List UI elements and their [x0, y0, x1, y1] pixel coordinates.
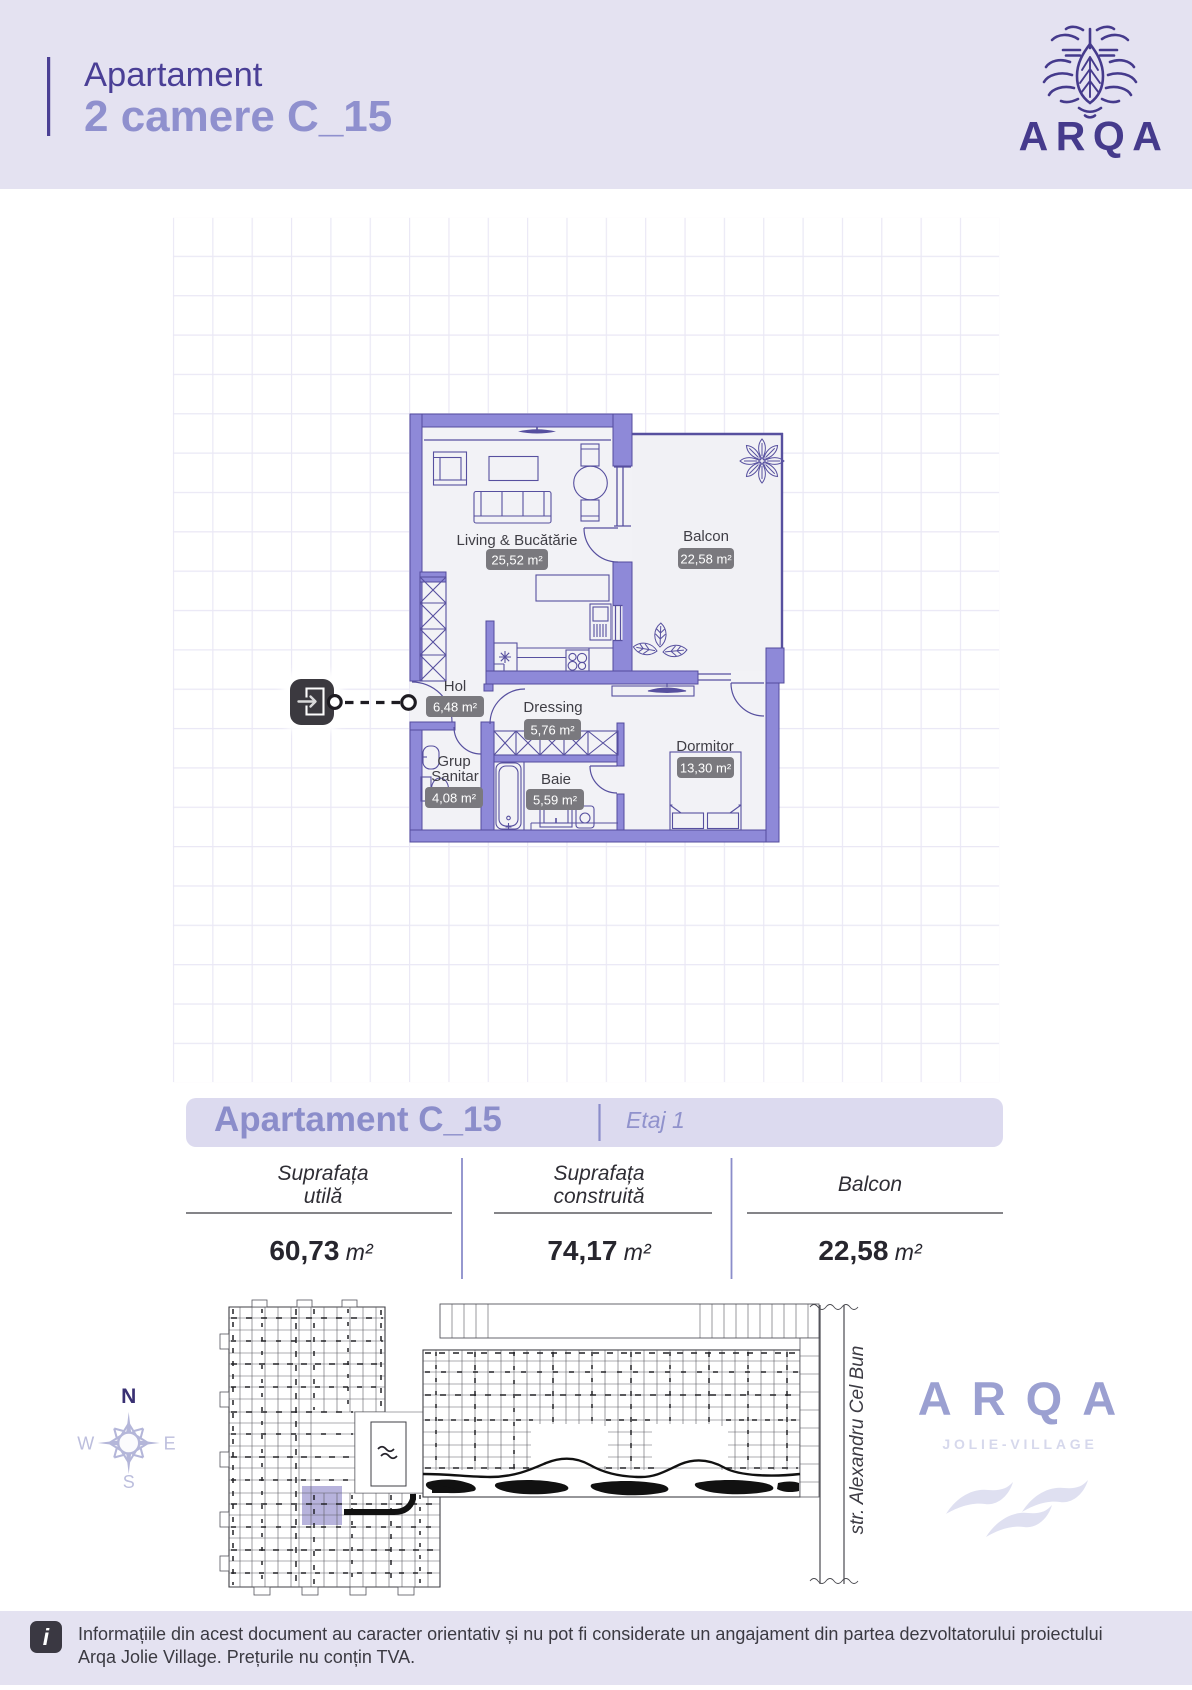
svg-text:Balcon: Balcon	[683, 528, 729, 545]
svg-text:6,48 m²: 6,48 m²	[433, 700, 478, 715]
svg-text:JOLIE-VILLAGE: JOLIE-VILLAGE	[942, 1436, 1097, 1452]
svg-text:74,17 m²: 74,17 m²	[547, 1235, 652, 1266]
svg-text:i: i	[43, 1624, 50, 1650]
svg-text:Apartament: Apartament	[84, 56, 263, 94]
svg-text:W: W	[77, 1434, 94, 1454]
svg-text:Informațiile din acest documen: Informațiile din acest document au carac…	[78, 1624, 1103, 1644]
svg-text:Dressing: Dressing	[523, 699, 582, 716]
svg-text:Balcon: Balcon	[838, 1173, 902, 1196]
svg-text:22,58 m²: 22,58 m²	[680, 552, 732, 567]
svg-text:str. Alexandru Cel Bun: str. Alexandru Cel Bun	[847, 1346, 868, 1535]
svg-text:Baie: Baie	[541, 771, 571, 788]
svg-text:S: S	[123, 1472, 135, 1492]
svg-text:Suprafața: Suprafața	[553, 1162, 644, 1185]
svg-text:Dormitor: Dormitor	[676, 738, 734, 755]
svg-text:13,30 m²: 13,30 m²	[680, 761, 732, 776]
svg-text:utilă: utilă	[304, 1185, 343, 1208]
svg-text:5,76 m²: 5,76 m²	[530, 723, 575, 738]
svg-text:ARQA: ARQA	[918, 1372, 1136, 1425]
svg-text:2 camere C_15: 2 camere C_15	[84, 92, 392, 141]
svg-text:4,08 m²: 4,08 m²	[432, 791, 477, 806]
svg-text:construită: construită	[553, 1185, 644, 1208]
svg-text:60,73 m²: 60,73 m²	[269, 1235, 374, 1266]
svg-text:5,59 m²: 5,59 m²	[533, 793, 578, 808]
svg-text:Hol: Hol	[444, 678, 467, 695]
svg-text:Living & Bucătărie: Living & Bucătărie	[457, 532, 578, 549]
svg-text:Etaj 1: Etaj 1	[626, 1107, 685, 1133]
svg-text:ARQA: ARQA	[1019, 113, 1170, 159]
svg-text:22,58 m²: 22,58 m²	[818, 1235, 923, 1266]
svg-text:N: N	[121, 1385, 136, 1408]
svg-text:Sanitar: Sanitar	[431, 768, 479, 785]
svg-text:25,52 m²: 25,52 m²	[491, 553, 543, 568]
svg-text:E: E	[164, 1434, 176, 1454]
svg-text:Suprafața: Suprafața	[277, 1162, 368, 1185]
svg-text:Arqa Jolie Village. Prețurile: Arqa Jolie Village. Prețurile nu conțin …	[78, 1647, 415, 1667]
svg-text:Apartament C_15: Apartament C_15	[214, 1100, 502, 1139]
